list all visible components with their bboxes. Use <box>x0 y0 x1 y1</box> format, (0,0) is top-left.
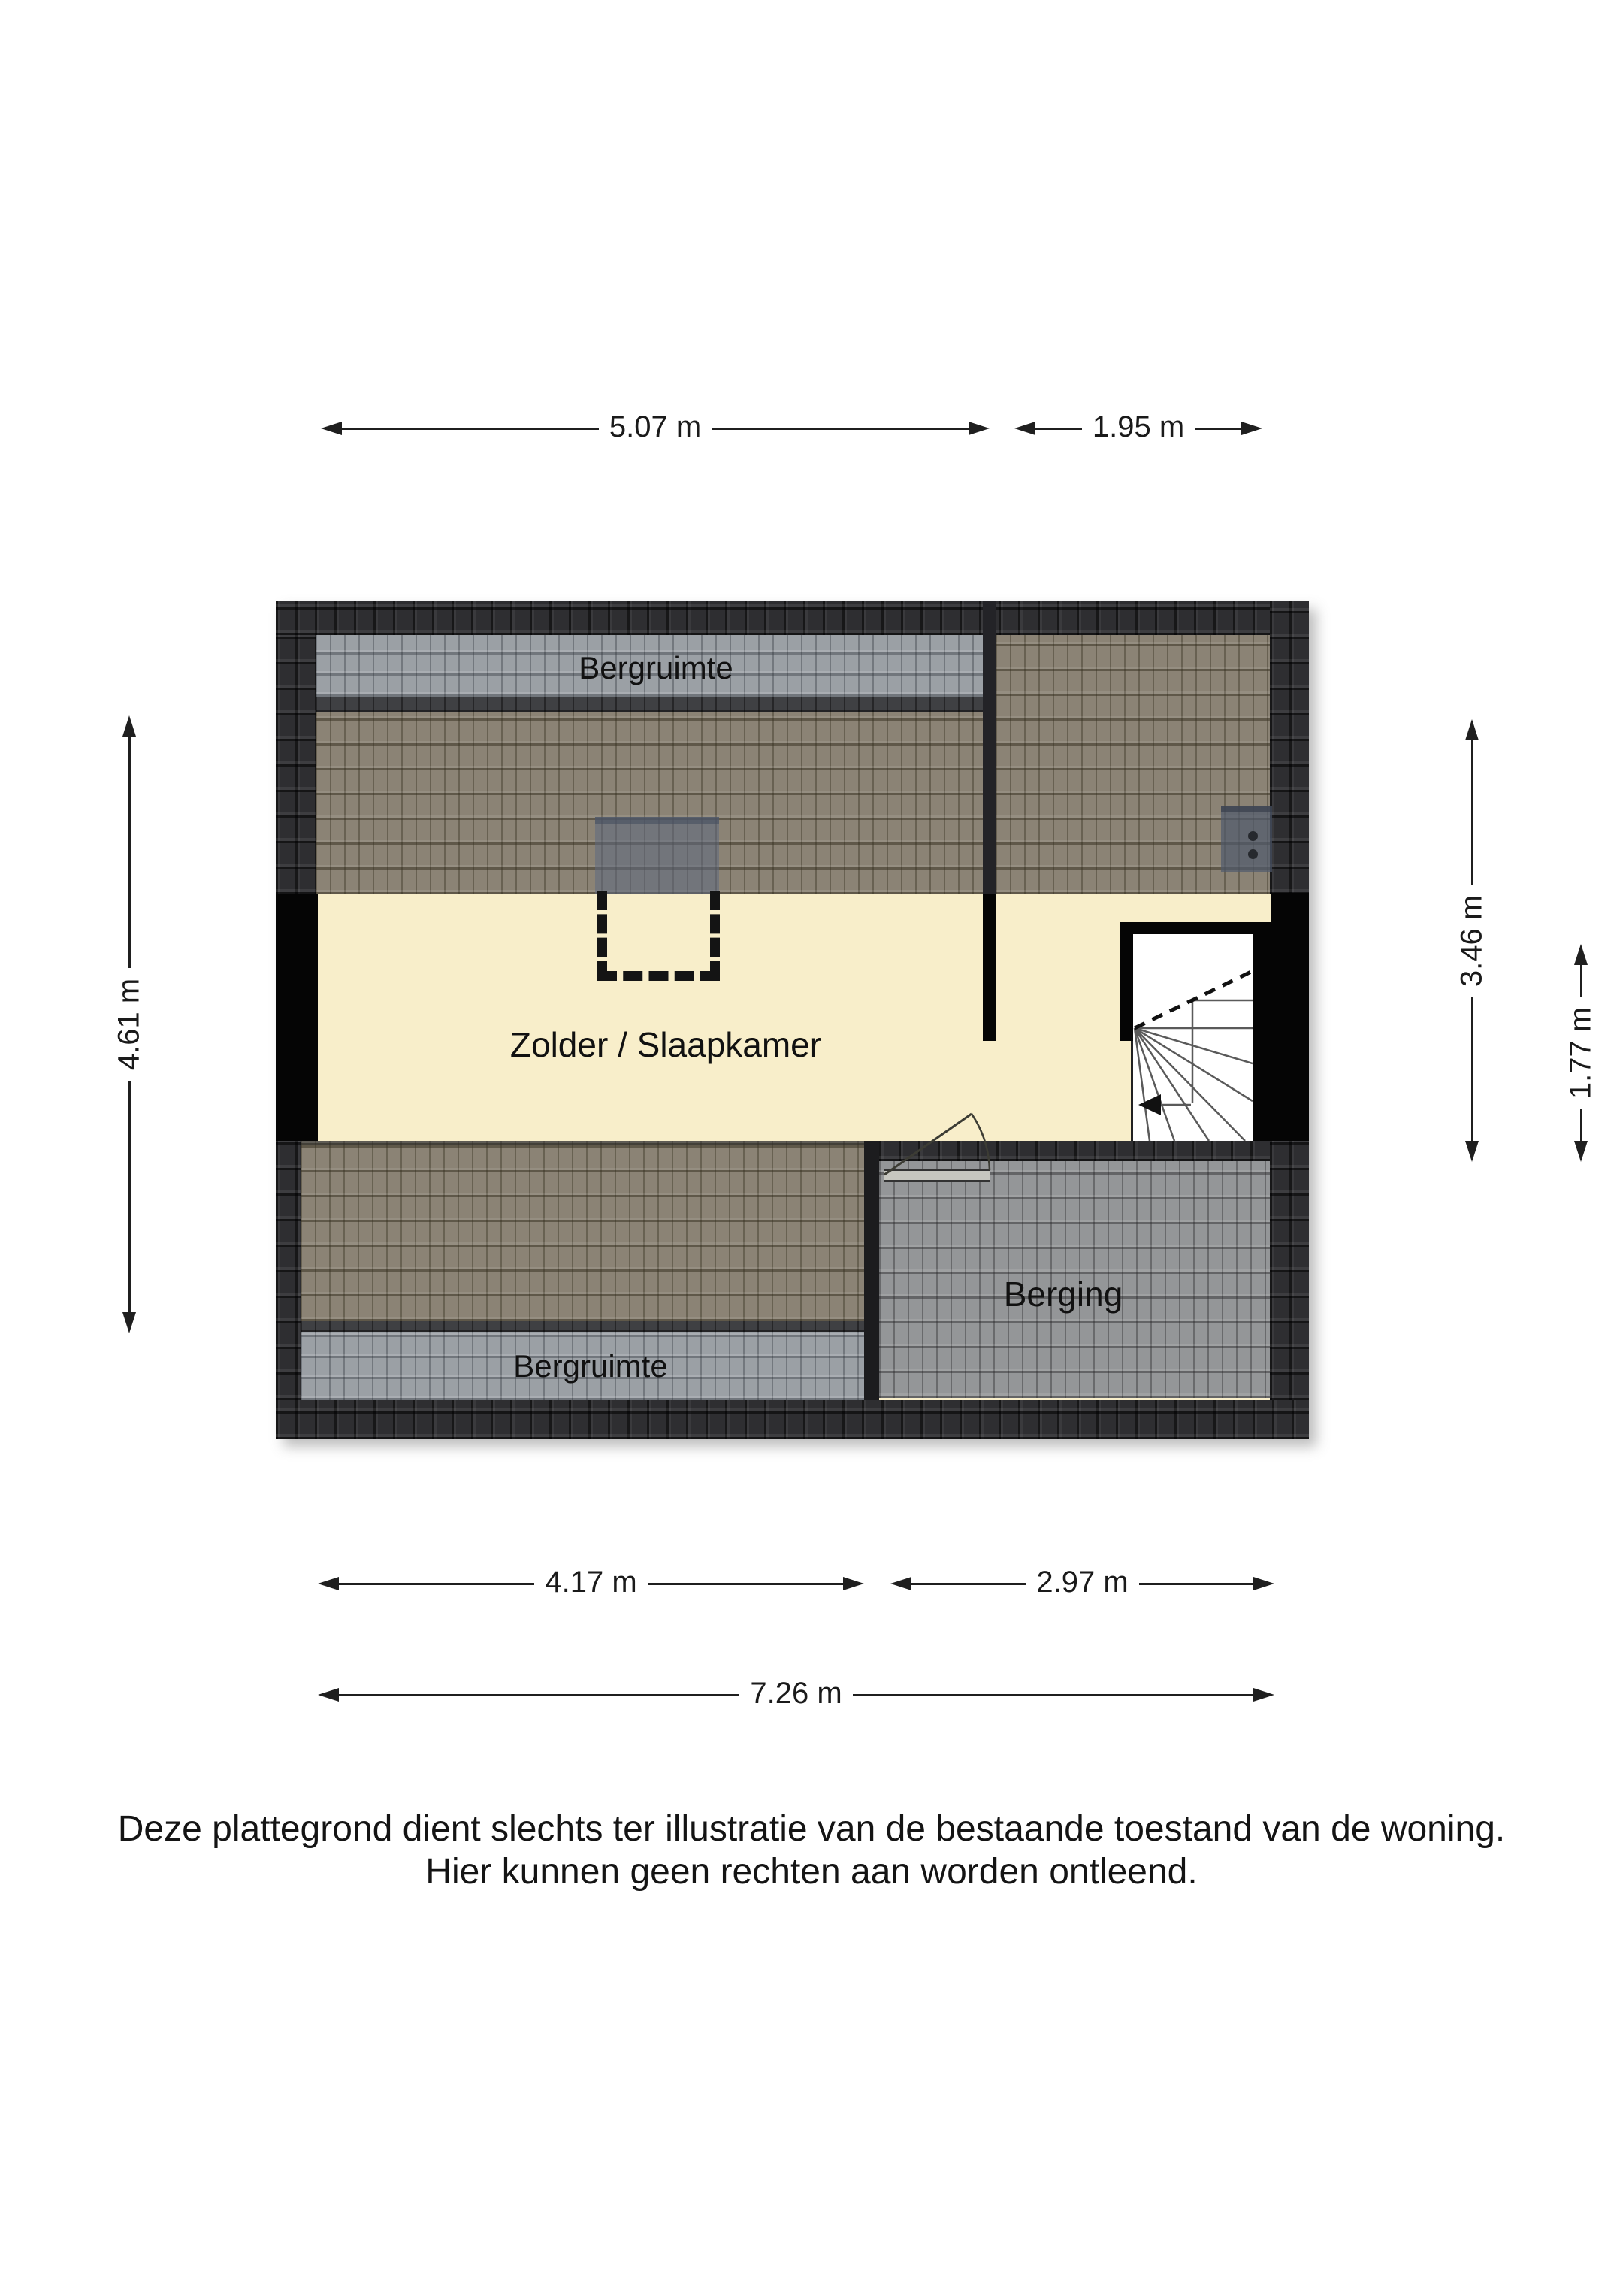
arrowhead-down-icon <box>122 1312 136 1333</box>
roof-edge-right-lower <box>1270 1141 1309 1400</box>
kneewall-divider-top <box>316 697 983 712</box>
vent-dot <box>1248 849 1258 859</box>
stairs-drawing <box>1133 934 1253 1141</box>
dimension-top-left-width: 5.07 m <box>321 413 990 443</box>
room-label-bergruimte-bottom: Bergruimte <box>513 1348 667 1384</box>
stairwell-wall-right <box>1253 934 1309 1141</box>
stairwell-wall-top <box>1120 922 1271 934</box>
dimension-bottom-total-width: 7.26 m <box>318 1680 1274 1710</box>
disclaimer-line-1: Deze plattegrond dient slechts ter illus… <box>0 1807 1623 1850</box>
arrowhead-left-icon <box>318 1577 339 1590</box>
arrowhead-down-icon <box>1465 1141 1479 1162</box>
kneewall-divider-bottom <box>301 1321 864 1332</box>
roof-edge-left-upper <box>276 635 316 894</box>
arrowhead-down-icon <box>1574 1141 1588 1162</box>
dimension-right-height-upper: 3.46 m <box>1457 719 1487 1162</box>
stairwell-wall-left <box>1120 922 1133 1041</box>
arrowhead-right-icon <box>1253 1688 1274 1702</box>
arrowhead-right-icon <box>843 1577 864 1590</box>
stairs-direction-arrow <box>1138 1094 1161 1115</box>
arrowhead-right-icon <box>969 422 990 435</box>
arrowhead-left-icon <box>1014 422 1035 435</box>
dimension-label: 1.95 m <box>1082 412 1195 442</box>
roof-vent-unit <box>1221 806 1272 872</box>
dimension-label: 1.77 m <box>1566 997 1596 1109</box>
dimension-label: 5.07 m <box>599 412 712 442</box>
roof-edge-bottom <box>276 1400 1309 1439</box>
berging-door-swing <box>877 1101 997 1187</box>
dimension-bottom-left-width: 4.17 m <box>318 1568 864 1599</box>
room-label-zolder: Zolder / Slaapkamer <box>510 1024 821 1065</box>
arrowhead-right-icon <box>1241 422 1262 435</box>
roof-slope-bottom-left <box>301 1141 864 1321</box>
dimension-right-height-lower: 1.77 m <box>1566 944 1596 1162</box>
disclaimer-text: Deze plattegrond dient slechts ter illus… <box>0 1807 1623 1893</box>
floorplan-page: Bergruimte Zolder / Slaapkamer <box>0 0 1623 2296</box>
wall-divider-roof <box>983 601 996 894</box>
arrowhead-up-icon <box>1574 944 1588 965</box>
dimension-left-height: 4.61 m <box>114 715 144 1333</box>
floorplan-drawing: Bergruimte Zolder / Slaapkamer <box>276 601 1309 1439</box>
dimension-label: 7.26 m <box>739 1678 852 1708</box>
arrowhead-left-icon <box>890 1577 911 1590</box>
room-label-bergruimte-top: Bergruimte <box>579 650 733 686</box>
chimney-block <box>595 817 719 898</box>
arrowhead-right-icon <box>1253 1577 1274 1590</box>
wall-divider-stub <box>983 894 996 1041</box>
dimension-label: 4.17 m <box>534 1567 647 1597</box>
roof-edge-top <box>276 601 1309 635</box>
dimension-bottom-right-width: 2.97 m <box>890 1568 1274 1599</box>
arrowhead-left-icon <box>318 1688 339 1702</box>
dashed-void-outline <box>597 891 720 981</box>
stairwell <box>1133 934 1253 1141</box>
vent-dot <box>1248 831 1258 841</box>
dimension-label: 2.97 m <box>1026 1567 1138 1597</box>
wall-left <box>276 894 318 1141</box>
arrowhead-up-icon <box>122 715 136 737</box>
dimension-label: 3.46 m <box>1457 885 1487 997</box>
room-label-berging: Berging <box>1004 1274 1123 1314</box>
dimension-label: 4.61 m <box>114 968 144 1081</box>
disclaimer-line-2: Hier kunnen geen rechten aan worden ontl… <box>0 1850 1623 1893</box>
roof-edge-right-upper <box>1270 601 1309 894</box>
arrowhead-up-icon <box>1465 719 1479 740</box>
dimension-top-right-width: 1.95 m <box>1014 413 1262 443</box>
roof-edge-left-lower <box>276 1141 301 1400</box>
arrowhead-left-icon <box>321 422 342 435</box>
